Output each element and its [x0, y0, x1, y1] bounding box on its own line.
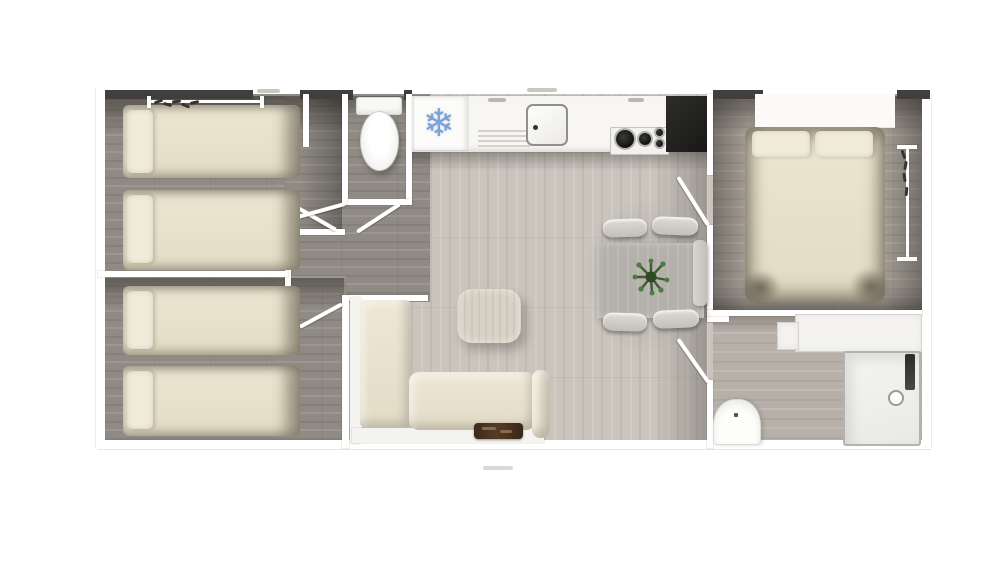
toilet-bowl: [360, 111, 399, 171]
washbasin: [713, 399, 761, 445]
floor-plan: ❄: [0, 0, 1000, 562]
entrance-step: [483, 466, 513, 470]
rail-cap-left: [147, 96, 151, 108]
wall-bedroom1-right: [303, 94, 309, 147]
pillow-bed-1: [127, 110, 153, 173]
shower-drain: [888, 390, 904, 406]
bed-corner-shadow-left: [741, 270, 781, 304]
serving-tray: [474, 423, 523, 439]
sofa-armrest: [532, 370, 550, 438]
hob-burner-small-2: [656, 140, 663, 147]
top-wall-segment-4: [897, 90, 930, 99]
hob-burner-large: [616, 130, 634, 148]
window-vent-bedroom: [257, 89, 280, 93]
cabinet-handle-1: [488, 98, 506, 102]
dark-worktop: [666, 96, 707, 152]
wall-master-upper: [707, 94, 713, 175]
top-wall-segment-1: [105, 90, 253, 99]
master-pillow-left: [752, 131, 810, 157]
wall-bedroom-divider: [98, 271, 288, 277]
wall-master-middle: [707, 225, 713, 322]
master-rail-cap-bottom: [897, 257, 917, 261]
coffee-table: [457, 289, 521, 343]
cabinet-handle-2: [628, 98, 644, 102]
dining-chair-4: [653, 309, 700, 329]
wall-wc-left: [342, 94, 348, 205]
bed-corner-shadow-right: [850, 268, 890, 304]
potted-plant: [629, 256, 673, 298]
outer-wall-left: [95, 88, 105, 448]
counter-drainer-vent: [478, 127, 530, 147]
pillow-bed-4: [127, 371, 153, 429]
window-vent-kitchen: [527, 88, 557, 92]
rail-cap-right: [260, 96, 264, 108]
wall-wc-bottom: [348, 199, 412, 205]
sink-drain-dot: [533, 125, 538, 130]
wall-bath-stub: [707, 316, 729, 322]
sofa-chaise-cushion: [360, 300, 411, 428]
dining-chair-3: [603, 312, 648, 332]
shower-column: [905, 354, 915, 390]
master-pillow-right: [815, 131, 873, 157]
master-rail-cap-top: [897, 145, 917, 149]
wall-living-left: [342, 295, 349, 448]
dining-chair-2: [652, 216, 699, 236]
snowflake-icon: ❄: [423, 104, 455, 142]
master-window-bay: [755, 94, 895, 128]
pillow-bed-3: [127, 291, 153, 349]
hob-burner-medium: [639, 133, 651, 145]
basin-drain-dot: [734, 413, 738, 417]
pillow-bed-2: [127, 195, 153, 263]
vanity-counter-tab: [777, 322, 799, 350]
vanity-counter: [795, 314, 922, 352]
outer-wall-right: [922, 94, 932, 448]
sofa-seat-cushion: [409, 372, 536, 430]
dining-bench: [693, 240, 707, 306]
kitchen-sink: [526, 104, 568, 146]
hob-burner-small-1: [656, 129, 663, 136]
dining-chair-1: [603, 218, 648, 238]
